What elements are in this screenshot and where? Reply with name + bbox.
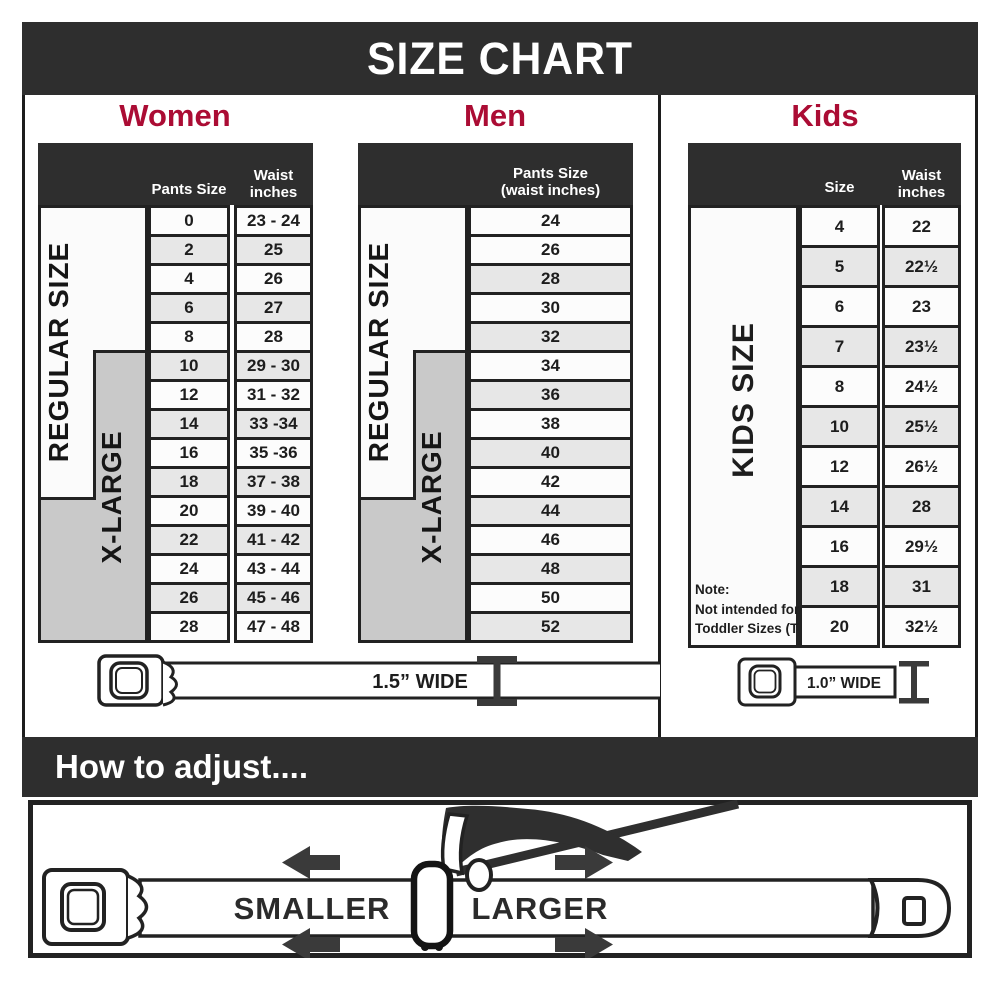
kids-col2-header: Waist inches xyxy=(882,167,961,201)
kids-size-cell: 12 xyxy=(799,445,880,488)
kids-belt-graphic: 1.0” WIDE xyxy=(737,655,945,710)
men-size-cell: 40 xyxy=(468,437,633,469)
kids-size-cell: 20 xyxy=(799,605,880,648)
adult-belt-width-label: 1.5” WIDE xyxy=(372,671,468,693)
women-col2-header: Waist inches xyxy=(234,167,313,201)
kids-waist-cell: 26½ xyxy=(882,445,961,488)
men-size-cell: 26 xyxy=(468,234,633,266)
women-size-cell: 0 xyxy=(148,205,230,237)
kids-waist-cell: 23½ xyxy=(882,325,961,368)
men-size-cell: 30 xyxy=(468,292,633,324)
kids-waist-cell: 23 xyxy=(882,285,961,328)
women-waist-cell: 28 xyxy=(234,321,313,353)
women-waist-cell: 41 - 42 xyxy=(234,524,313,556)
kids-table-header: Size Waist inches xyxy=(688,143,961,205)
men-regular-size-label: REGULAR SIZE xyxy=(363,242,394,462)
kids-heading: Kids xyxy=(730,98,920,134)
kids-size-cell: 5 xyxy=(799,245,880,288)
men-pants-size-column: 242628303234363840424446485052 xyxy=(468,205,633,643)
women-waist-cell: 45 - 46 xyxy=(234,582,313,614)
men-size-cell: 28 xyxy=(468,263,633,295)
kids-waist-cell: 24½ xyxy=(882,365,961,408)
kids-size-cell: 16 xyxy=(799,525,880,568)
men-col-header: Pants Size (waist inches) xyxy=(468,165,633,199)
men-size-cell: 52 xyxy=(468,611,633,643)
men-size-cell: 50 xyxy=(468,582,633,614)
women-size-cell: 20 xyxy=(148,495,230,527)
belt-tip xyxy=(871,880,949,936)
panel-divider xyxy=(658,95,661,737)
kids-size-cell: 4 xyxy=(799,205,880,248)
women-table-header: Pants Size Waist inches xyxy=(38,143,313,205)
men-size-cell: 24 xyxy=(468,205,633,237)
kids-note: Note: Not intended for Toddler Sizes (T) xyxy=(695,580,803,639)
men-size-category-label: REGULAR SIZE X-LARGE xyxy=(358,205,468,643)
kids-size-column: 45678101214161820 xyxy=(799,205,880,648)
men-size-cell: 32 xyxy=(468,321,633,353)
belt-slider xyxy=(414,864,450,951)
kids-waist-cell: 28 xyxy=(882,485,961,528)
women-size-cell: 14 xyxy=(148,408,230,440)
how-to-adjust-illustration: SMALLER LARGER xyxy=(28,800,972,958)
women-size-cell: 16 xyxy=(148,437,230,469)
kids-size-category-label: KIDS SIZE Note: Not intended for Toddler… xyxy=(688,205,799,648)
women-xlarge-label: X-LARGE xyxy=(96,431,127,564)
how-to-adjust-bar: How to adjust.... xyxy=(22,737,978,797)
men-size-cell: 48 xyxy=(468,553,633,585)
women-waist-cell: 43 - 44 xyxy=(234,553,313,585)
kids-size-cell: 7 xyxy=(799,325,880,368)
kids-size-cell: 8 xyxy=(799,365,880,408)
men-size-cell: 36 xyxy=(468,379,633,411)
women-size-cell: 22 xyxy=(148,524,230,556)
women-waist-cell: 27 xyxy=(234,292,313,324)
kids-waist-cell: 32½ xyxy=(882,605,961,648)
women-size-cell: 18 xyxy=(148,466,230,498)
women-size-cell: 2 xyxy=(148,234,230,266)
kids-waist-cell: 25½ xyxy=(882,405,961,448)
women-waist-cell: 47 - 48 xyxy=(234,611,313,643)
women-waist-cell: 31 - 32 xyxy=(234,379,313,411)
adult-belt-graphic: 1.5” WIDE xyxy=(95,650,660,712)
kids-size-cell: 6 xyxy=(799,285,880,328)
men-size-cell: 42 xyxy=(468,466,633,498)
seatbelt-buckle-icon xyxy=(99,656,177,705)
smaller-label: SMALLER xyxy=(234,891,391,926)
women-size-cell: 4 xyxy=(148,263,230,295)
kids-size-cell: 10 xyxy=(799,405,880,448)
women-waist-cell: 39 - 40 xyxy=(234,495,313,527)
width-measure-icon xyxy=(899,661,929,704)
kids-waist-column: 2222½2323½24½25½26½2829½3132½ xyxy=(882,205,961,648)
seatbelt-buckle-icon xyxy=(44,870,147,944)
men-table-header: Pants Size (waist inches) xyxy=(358,143,633,205)
women-heading: Women xyxy=(80,98,270,134)
women-size-cell: 12 xyxy=(148,379,230,411)
title-bar: SIZE CHART xyxy=(22,22,978,95)
women-size-cell: 26 xyxy=(148,582,230,614)
women-waist-cell: 29 - 30 xyxy=(234,350,313,382)
women-waist-cell: 25 xyxy=(234,234,313,266)
women-size-cell: 28 xyxy=(148,611,230,643)
women-waist-cell: 23 - 24 xyxy=(234,205,313,237)
men-size-cell: 34 xyxy=(468,350,633,382)
men-size-cell: 46 xyxy=(468,524,633,556)
women-waist-cell: 35 -36 xyxy=(234,437,313,469)
women-size-category-label: REGULAR SIZE X-LARGE xyxy=(38,205,148,643)
women-size-cell: 10 xyxy=(148,350,230,382)
kids-waist-cell: 22½ xyxy=(882,245,961,288)
women-waist-cell: 33 -34 xyxy=(234,408,313,440)
kids-size-cell: 14 xyxy=(799,485,880,528)
page-title: SIZE CHART xyxy=(367,33,633,85)
men-xlarge-label: X-LARGE xyxy=(416,431,447,564)
kids-size-cell: 18 xyxy=(799,565,880,608)
seatbelt-buckle-icon xyxy=(739,659,795,705)
women-size-cell: 8 xyxy=(148,321,230,353)
how-to-adjust-heading: How to adjust.... xyxy=(22,748,308,786)
women-waist-column: 23 - 242526272829 - 3031 - 3233 -3435 -3… xyxy=(234,205,313,643)
women-size-cell: 24 xyxy=(148,553,230,585)
kids-col1-header: Size xyxy=(799,179,880,196)
kids-belt-width-label: 1.0” WIDE xyxy=(807,675,881,692)
size-chart-page: SIZE CHART Women Men Kids Pants Size Wai… xyxy=(0,0,1000,1000)
larger-label: LARGER xyxy=(472,891,609,926)
women-waist-cell: 37 - 38 xyxy=(234,466,313,498)
women-size-cell: 6 xyxy=(148,292,230,324)
women-col1-header: Pants Size xyxy=(148,181,230,198)
kids-waist-cell: 29½ xyxy=(882,525,961,568)
men-size-cell: 44 xyxy=(468,495,633,527)
kids-size-label: KIDS SIZE xyxy=(727,322,761,478)
kids-waist-cell: 31 xyxy=(882,565,961,608)
women-pants-size-column: 0246810121416182022242628 xyxy=(148,205,230,643)
women-waist-cell: 26 xyxy=(234,263,313,295)
men-size-cell: 38 xyxy=(468,408,633,440)
kids-waist-cell: 22 xyxy=(882,205,961,248)
women-regular-size-label: REGULAR SIZE xyxy=(43,242,74,462)
men-heading: Men xyxy=(400,98,590,134)
